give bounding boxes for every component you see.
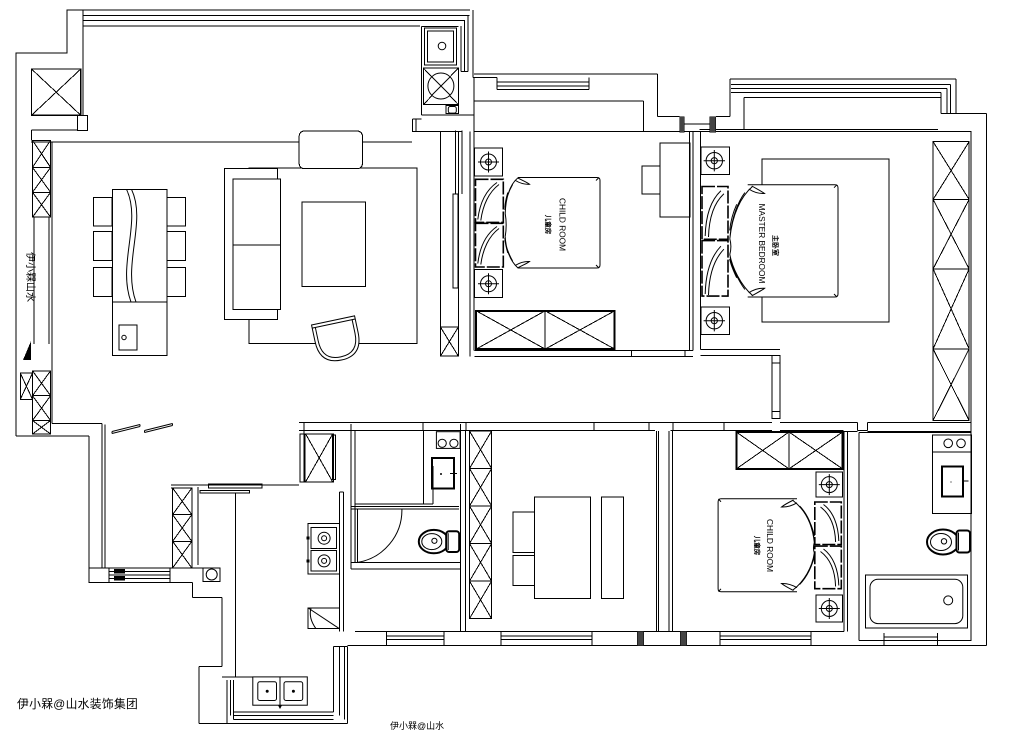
svg-text:儿童房: 儿童房 — [753, 535, 762, 556]
svg-text:CHILD ROOM: CHILD ROOM — [765, 519, 775, 572]
svg-text:CHILD ROOM: CHILD ROOM — [558, 198, 568, 251]
svg-text:伊小槑山水: 伊小槑山水 — [24, 252, 36, 302]
svg-text:伊小槑@山水: 伊小槑@山水 — [390, 720, 444, 730]
svg-text:MASTER BEDROOM: MASTER BEDROOM — [757, 204, 767, 284]
svg-text:儿童房: 儿童房 — [544, 214, 553, 235]
svg-text:伊小槑@山水装饰集团: 伊小槑@山水装饰集团 — [17, 697, 138, 711]
svg-text:主卧室: 主卧室 — [771, 235, 780, 256]
